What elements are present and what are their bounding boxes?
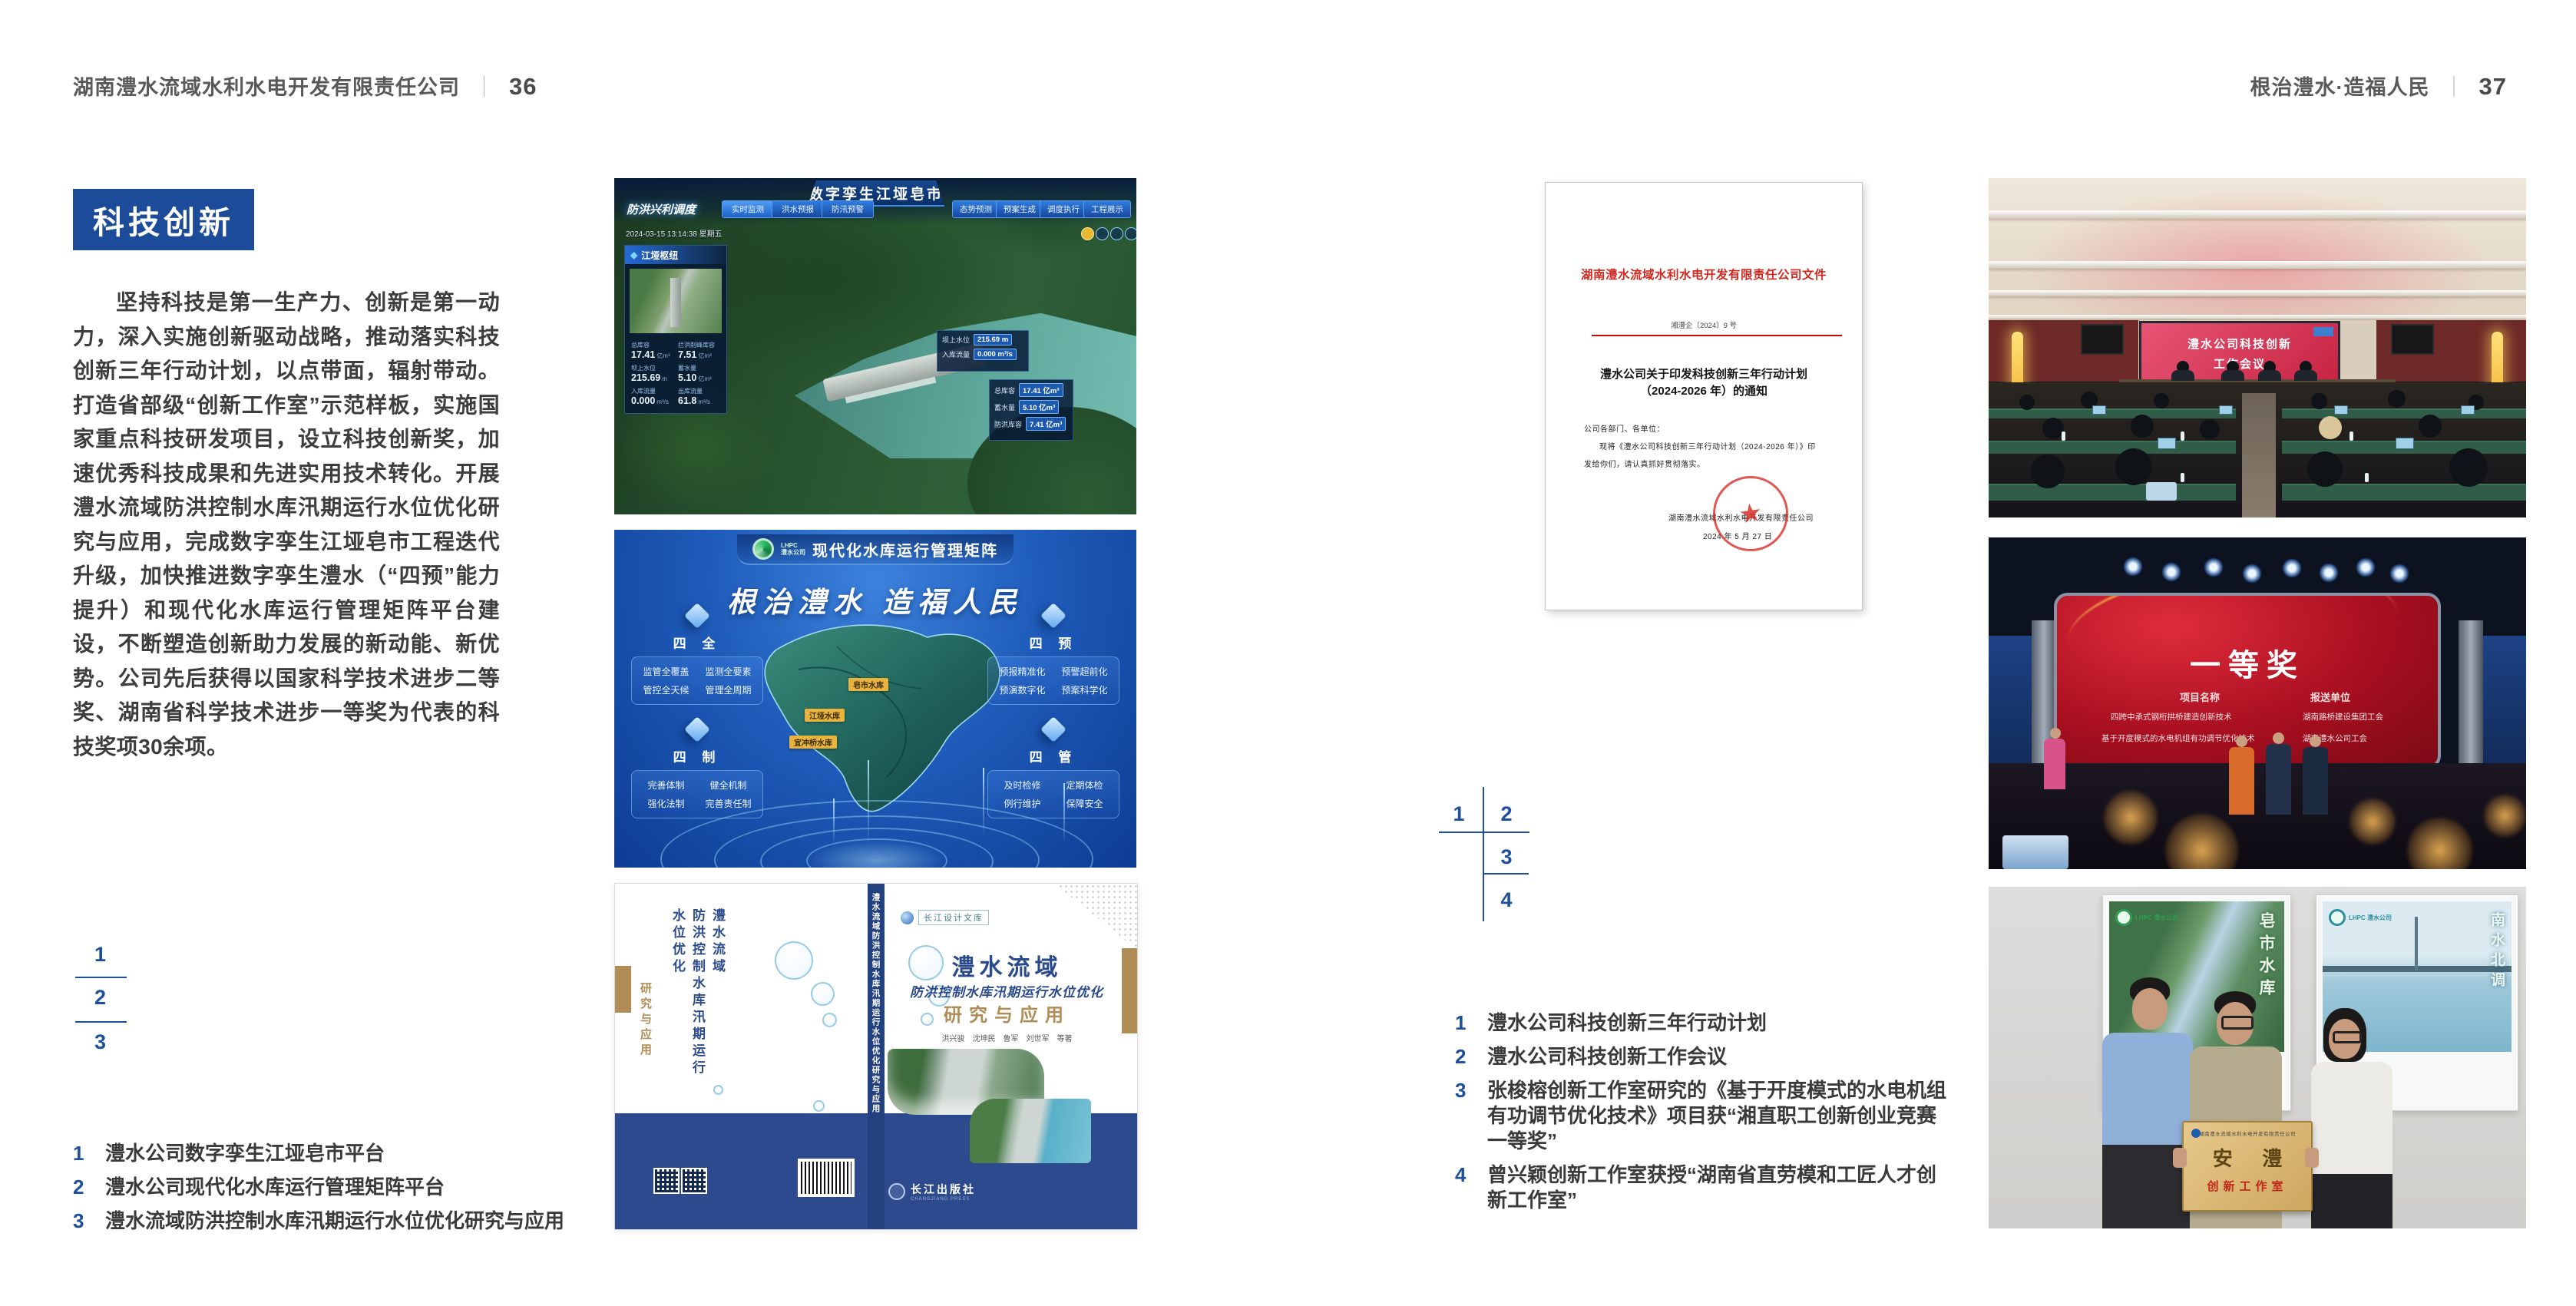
water-bottle [2062, 431, 2065, 441]
tab-plan-generation: 预案生成 [996, 200, 1043, 218]
user-icon [1081, 227, 1094, 240]
person-right-shirt [2311, 1062, 2392, 1177]
person-right-pants [2311, 1174, 2392, 1228]
glasses [2221, 1016, 2254, 1030]
desk-row [1989, 441, 2236, 454]
module-items: 预报精准化预警超前化 预演数字化预案科学化 [987, 656, 1119, 705]
center-aisle [2242, 393, 2276, 517]
photo-meeting: 澧水公司科技创新 工作会议 [1989, 178, 2526, 517]
cube-icon [1040, 603, 1066, 629]
attendee [2031, 455, 2065, 488]
lhpc-logo-icon [2115, 909, 2132, 926]
tissue-box [2146, 482, 2177, 501]
wall-screen [2081, 324, 2124, 355]
module-siguan: 四 管 及时检修定期体检 例行维护保障安全 [987, 720, 1119, 818]
panelist-torso [2294, 370, 2317, 381]
attendee [2307, 451, 2343, 487]
name-card [2334, 405, 2348, 415]
brochure-spread: 湖南澧水流域水利水电开发有限责任公司｜36 根治澧水·造福人民｜37 科技创新 … [0, 0, 2576, 1306]
bubble [813, 1100, 825, 1112]
platform-title: 现代化水库运行管理矩阵 [812, 538, 998, 560]
book-title-sub: 防洪控制水库汛期运行水位优化 [884, 981, 1129, 1000]
stat-cell: 总库容17.41亿m³ [631, 341, 673, 360]
bokeh-light [2104, 791, 2158, 845]
stat-cell: 出库流量61.8m³/s [678, 387, 720, 406]
caption-text: 澧水流域防洪控制水库汛期运行水位优化研究与应用 [105, 1208, 564, 1234]
imprint-globe-icon [901, 911, 914, 924]
caption-row: 2澧水公司现代化水库运行管理矩阵平台 [73, 1175, 580, 1200]
tan-accent-block [615, 966, 631, 1013]
attendee [2115, 448, 2152, 485]
stat-cell: 拦洪削峰库容7.51亿m³ [678, 341, 720, 360]
name-card [2092, 405, 2106, 415]
ceiling-light [1989, 261, 2526, 269]
body-paragraph: 坚持科技是第一生产力、创新是第一动力，深入实施创新驱动战略，推动落实科技创新三年… [73, 286, 500, 764]
name-card [2396, 438, 2414, 449]
column-header-unit: 报送单位 [2310, 689, 2350, 704]
stage-spotlight [2389, 564, 2409, 584]
spine-title: 澧水流域防洪控制水库汛期运行水位优化研究与应用 [871, 893, 882, 1229]
map-label-yichongqiao: 宜冲桥水库 [789, 736, 837, 749]
document-salutation: 公司各部门、各单位： [1584, 422, 1665, 434]
droplet-icon: ◆ [630, 250, 637, 260]
stat-cell: 蓄水量5.10亿m³ [678, 364, 720, 383]
awardee [2273, 732, 2284, 744]
header-divider: ｜ [2444, 76, 2465, 99]
awardee-suit [2266, 744, 2291, 815]
module-items: 监管全覆盖监测全要素 管控全天候管理全周期 [631, 656, 763, 705]
award-title: 一等奖 [2057, 640, 2438, 685]
attendee [2200, 419, 2220, 439]
attendee [2319, 416, 2342, 439]
caption-row: 3澧水流域防洪控制水库汛期运行水位优化研究与应用 [73, 1208, 580, 1234]
station-name: 江垭枢纽 [641, 249, 678, 262]
plaque-subtitle: 创新工作室 [2184, 1178, 2311, 1194]
figure-book-cover: 澧水流域防洪控制水库汛期运行水位优化 研究与应用 澧水流域防洪控制水库汛期运行水… [614, 883, 1138, 1230]
caption-text: 澧水公司数字孪生江垭皂市平台 [105, 1141, 385, 1166]
desk-row [2282, 484, 2526, 501]
marker-divider [75, 977, 127, 978]
company-name: 湖南澧水流域水利水电开发有限责任公司 [73, 76, 460, 99]
tab-flood-forecast: 洪水预报 [772, 200, 824, 218]
caption-row: 1澧水公司数字孪生江垭皂市平台 [73, 1141, 580, 1166]
tab-situation-forecast: 态势预测 [952, 200, 1000, 218]
person-left-shirt [2102, 1033, 2193, 1148]
back-cover-title: 澧水流域防洪控制水库汛期运行水位优化 [667, 908, 727, 1085]
award-project: 四跨中承式钢桁拱桥建造创新技术 [2111, 711, 2232, 722]
awardee-suit [2303, 747, 2328, 815]
module-siyu: 四 预 预报精准化预警超前化 预演数字化预案科学化 [987, 607, 1119, 705]
awardee [2310, 736, 2321, 747]
caption-number: 2 [73, 1175, 88, 1200]
slogan: 根治澧水·造福人民 [2250, 76, 2430, 99]
lhpc-logo-text: LHPC澧水公司 [781, 542, 805, 556]
map-popup: 坝上水位215.69 m 入库流量0.000 m³/s [937, 330, 1029, 372]
bubble [775, 941, 813, 980]
timestamp: 2024-03-15 13:14:38 星期五 [626, 227, 723, 239]
book-title-main: 澧水流域 [888, 948, 1126, 982]
module-items: 完善体制健全机制 强化法制完善责任制 [631, 770, 763, 818]
module-label: 防洪兴利调度 [627, 201, 696, 217]
cube-icon [1040, 716, 1066, 742]
caption-text: 曾兴颖创新工作室获授“湖南省直劳模和工匠人才创新工作室” [1487, 1162, 1953, 1213]
figure-digital-twin: 数字孪生江垭皂市 防洪兴利调度 实时监测 洪水预报 防汛预警 态势预测 预案生成… [614, 178, 1136, 514]
caption-row: 2澧水公司科技创新工作会议 [1455, 1044, 1953, 1070]
figure-markers-left: 1 2 3 [73, 943, 134, 1073]
bridge-pylon [2415, 917, 2418, 970]
awardee [2236, 736, 2247, 747]
stage-spotlight [2123, 557, 2143, 577]
platform-title-bar: LHPC澧水公司 现代化水库运行管理矩阵 [737, 534, 1014, 565]
page-number-right: 37 [2479, 73, 2507, 100]
attendee [2419, 415, 2442, 438]
figure-marker-1: 1 [83, 943, 117, 967]
section-title-badge: 科技创新 [73, 189, 254, 250]
marker-divider-vertical [1483, 787, 1484, 921]
basin-map [729, 616, 1021, 823]
document-body-line2: 发给你们，请认真抓好贯彻落实。 [1584, 458, 1705, 469]
publisher-logo-icon [888, 1183, 905, 1200]
host [2050, 728, 2061, 739]
stage-spotlight [2161, 562, 2181, 582]
capacity-row: 防洪库容7.41 亿m³ [994, 417, 1068, 431]
ceiling-light [1989, 315, 2526, 319]
attendee [2311, 393, 2327, 409]
document-body-line1: 现将《澧水公司科技创新三年行动计划（2024-2026 年）》印 [1599, 440, 1816, 451]
figure-matrix-platform: LHPC澧水公司 现代化水库运行管理矩阵 根治澧水 造福人民 皂市水库 江垭水库… [614, 530, 1136, 868]
ceiling [1989, 178, 2526, 324]
qr-code [681, 1168, 707, 1194]
capacity-row: 总库容17.41 亿m³ [994, 383, 1068, 397]
poster-right-title: 南水北调 [2486, 912, 2507, 992]
stat-cell: 坝上水位215.69m [631, 364, 673, 383]
caption-text: 澧水公司科技创新工作会议 [1487, 1044, 1727, 1070]
dam-photo-corner [970, 1099, 1091, 1163]
capacity-panel: 总库容17.41 亿m³ 蓄水量5.10 亿m³ 防洪库容7.41 亿m³ [989, 379, 1073, 441]
imprint: 长江设计文库 [901, 910, 989, 925]
map-label-jiangya: 江垭水库 [805, 709, 845, 722]
figure-markers-right: 1 2 3 4 [1439, 783, 1539, 929]
caption-text: 澧水公司科技创新三年行动计划 [1487, 1010, 1767, 1036]
marker-divider [1483, 873, 1529, 875]
poster-left-logo: LHPC 澧水公司 [2115, 909, 2178, 926]
attendee [2449, 448, 2488, 487]
dam-thumbnail [670, 278, 681, 327]
seal-star-icon: ★ [1737, 497, 1764, 531]
attendee [2131, 415, 2154, 438]
document-title-line1: 澧水公司关于印发科技创新三年行动计划 [1546, 365, 1862, 382]
caption-text: 张梭榕创新工作室研究的《基于开度模式的水电机组有功调节优化技术》项目获“湘直职工… [1487, 1078, 1953, 1154]
screen-logo-chip [2313, 327, 2333, 336]
document-red-header: 湖南澧水流域水利水电开发有限责任公司文件 [1546, 266, 1862, 283]
bubble [713, 1085, 723, 1095]
publisher-name-en: CHANGJIANG PRESS [911, 1197, 976, 1202]
glasses [2333, 1031, 2362, 1043]
water-bottle [2181, 473, 2184, 482]
award-project: 基于开度模式的水电机组有功调节优化技术 [2101, 732, 2255, 744]
alert-icon [1125, 227, 1136, 240]
qr-code [653, 1168, 680, 1194]
stage-spotlight [2356, 557, 2376, 577]
tab-flood-warning: 防汛预警 [822, 200, 874, 218]
name-card [2461, 405, 2475, 415]
station-panel-header: ◆江垭枢纽 [625, 246, 726, 264]
water-bottle [2365, 473, 2369, 482]
cube-icon [684, 716, 710, 742]
document-number: 湘澧企〔2024〕9 号 [1546, 319, 1862, 330]
publisher-block: 长江出版社 CHANGJIANG PRESS [888, 1182, 976, 1202]
stage-spotlight [2204, 557, 2224, 577]
bubble [811, 982, 835, 1006]
desk-row [2282, 408, 2526, 418]
figure-marker-1: 1 [1445, 802, 1473, 826]
caption-text: 澧水公司现代化水库运行管理矩阵平台 [105, 1175, 445, 1200]
locate-icon [1110, 227, 1123, 240]
poster-right-logo: LHPC 澧水公司 [2329, 909, 2392, 926]
person-left-head [2132, 988, 2168, 1030]
plaque-logo-icon [2191, 1129, 2201, 1138]
attendee [2019, 395, 2035, 410]
host-figure [2044, 739, 2065, 789]
layers-icon [1096, 227, 1109, 240]
photo-award-ceremony: 一等奖 项目名称 报送单位 四跨中承式钢桁拱桥建造创新技术 湖南路桥建设集团工会… [1989, 537, 2526, 869]
panelist-torso [2171, 370, 2194, 381]
popup-row: 坝上水位215.69 m [942, 334, 1023, 346]
caption-number: 2 [1455, 1044, 1470, 1070]
stat-cell: 入库流量0.000m³/s [631, 387, 673, 406]
cube-icon [684, 603, 710, 629]
lhpc-logo-icon [2329, 909, 2346, 926]
name-card [2219, 405, 2233, 415]
caption-list-left: 1澧水公司数字孪生江垭皂市平台 2澧水公司现代化水库运行管理矩阵平台 3澧水流域… [73, 1141, 580, 1242]
figure-marker-2: 2 [1493, 802, 1520, 826]
capacity-row: 蓄水量5.10 亿m³ [994, 400, 1068, 414]
name-card [2158, 438, 2176, 449]
innovation-studio-plaque: 湖南澧水流域水利水电开发有限责任公司 安 澧 创新工作室 [2182, 1121, 2313, 1212]
poster-left-title: 皂市水库 [2255, 912, 2278, 1001]
water-bottle [2181, 431, 2184, 441]
panelist-torso [2258, 370, 2281, 381]
side-screen-left [1989, 636, 2033, 775]
attendee [2042, 418, 2064, 439]
document-red-rule [1592, 335, 1842, 336]
photo-document: 湖南澧水流域水利水电开发有限责任公司文件 湘澧企〔2024〕9 号 澧水公司关于… [1545, 182, 1863, 610]
column-header-project: 项目名称 [2180, 689, 2220, 704]
podium [2002, 835, 2068, 869]
caption-number: 1 [1455, 1010, 1470, 1036]
ceiling-light [1989, 210, 2526, 219]
award-unit: 湖南路桥建设集团工会 [2303, 711, 2383, 722]
page-number-left: 36 [509, 73, 537, 100]
imprint-text: 长江设计文库 [918, 910, 989, 925]
plaque-header: 湖南澧水流域水利水电开发有限责任公司 [2184, 1129, 2311, 1137]
station-panel: ◆江垭枢纽 总库容17.41亿m³ 拦洪削峰库容7.51亿m³ 坝上水位215.… [624, 245, 727, 414]
barcode [798, 1159, 855, 1197]
caption-row: 1澧水公司科技创新三年行动计划 [1455, 1010, 1953, 1036]
bokeh-light [2349, 798, 2396, 845]
figure-marker-3: 3 [1493, 845, 1520, 869]
attendee [2388, 390, 2406, 408]
book-authors: 洪兴骏 沈坤民 鲁军 刘世军 等著 [888, 1032, 1126, 1043]
hand [2173, 1148, 2187, 1168]
marker-divider [75, 1021, 127, 1023]
figure-marker-2: 2 [83, 986, 117, 1010]
module-siquan: 四 全 监管全覆盖监测全要素 管控全天候管理全周期 [631, 607, 763, 705]
caption-row: 4曾兴颖创新工作室获授“湖南省直劳模和工匠人才创新工作室” [1455, 1162, 1953, 1213]
tab-dispatch-execution: 调度执行 [1040, 200, 1087, 218]
desk-row [1989, 484, 2236, 501]
stage-spotlight [2242, 564, 2262, 584]
stage-spotlight [2282, 558, 2302, 578]
plaque-title: 安 澧 [2184, 1143, 2311, 1172]
marker-divider [1439, 832, 1529, 833]
panelist-torso [2221, 370, 2244, 381]
station-aerial-thumbnail [630, 269, 722, 333]
ceiling-light [1989, 290, 2526, 296]
header-right: 根治澧水·造福人民｜37 [2250, 71, 2507, 101]
stage-spotlight [2319, 563, 2339, 583]
caption-number: 3 [73, 1208, 88, 1234]
book-title-tail: 研究与应用 [888, 1000, 1126, 1027]
water-bottle [2349, 431, 2353, 441]
halftone-corner [1010, 884, 1137, 950]
book-spine: 澧水流域防洪控制水库汛期运行水位优化研究与应用 [868, 884, 885, 1229]
figure-marker-3: 3 [83, 1030, 117, 1054]
header-divider: ｜ [474, 76, 495, 99]
figure-marker-4: 4 [1493, 888, 1520, 912]
popup-row: 入库流量0.000 m³/s [942, 349, 1023, 360]
tab-project-view: 工程展示 [1083, 200, 1131, 218]
caption-number: 1 [73, 1141, 88, 1166]
photo-group: LHPC 澧水公司 皂市水库 LHPC 澧水公司 南水北调 [1989, 887, 2526, 1228]
caption-number: 3 [1455, 1078, 1470, 1154]
side-screen-right [2482, 636, 2526, 775]
caption-row: 3张梭榕创新工作室研究的《基于开度模式的水电机组有功调节优化技术》项目获“湘直职… [1455, 1078, 1953, 1154]
led-screen: 一等奖 项目名称 报送单位 四跨中承式钢桁拱桥建造创新技术 湖南路桥建设集团工会… [2054, 593, 2441, 769]
bokeh-light [2484, 795, 2526, 837]
caption-number: 4 [1455, 1162, 1470, 1213]
bubble [822, 1013, 837, 1027]
hand [2305, 1148, 2319, 1168]
map-label-zaoshi: 皂市水库 [848, 678, 888, 691]
wall-screen [2391, 324, 2434, 355]
screen-title-line1: 澧水公司科技创新 [2141, 336, 2338, 352]
caption-list-right: 1澧水公司科技创新三年行动计划 2澧水公司科技创新工作会议 3张梭榕创新工作室研… [1455, 1010, 1953, 1222]
back-cover-subtitle: 研究与应用 [635, 982, 655, 1074]
awardee-orange [2229, 747, 2254, 815]
header-left: 湖南澧水流域水利水电开发有限责任公司｜36 [73, 71, 537, 101]
lhpc-logo-icon [752, 538, 774, 560]
module-sizhi: 四 制 完善体制健全机制 强化法制完善责任制 [631, 720, 763, 818]
tab-realtime-monitoring: 实时监测 [722, 200, 774, 218]
station-stats: 总库容17.41亿m³ 拦洪削峰库容7.51亿m³ 坝上水位215.69m 蓄水… [625, 338, 726, 409]
official-seal: ★ [1708, 471, 1794, 557]
attendee [2154, 393, 2169, 408]
document-title-line2: （2024-2026 年）的通知 [1546, 382, 1862, 398]
publisher-name: 长江出版社 [911, 1182, 976, 1197]
